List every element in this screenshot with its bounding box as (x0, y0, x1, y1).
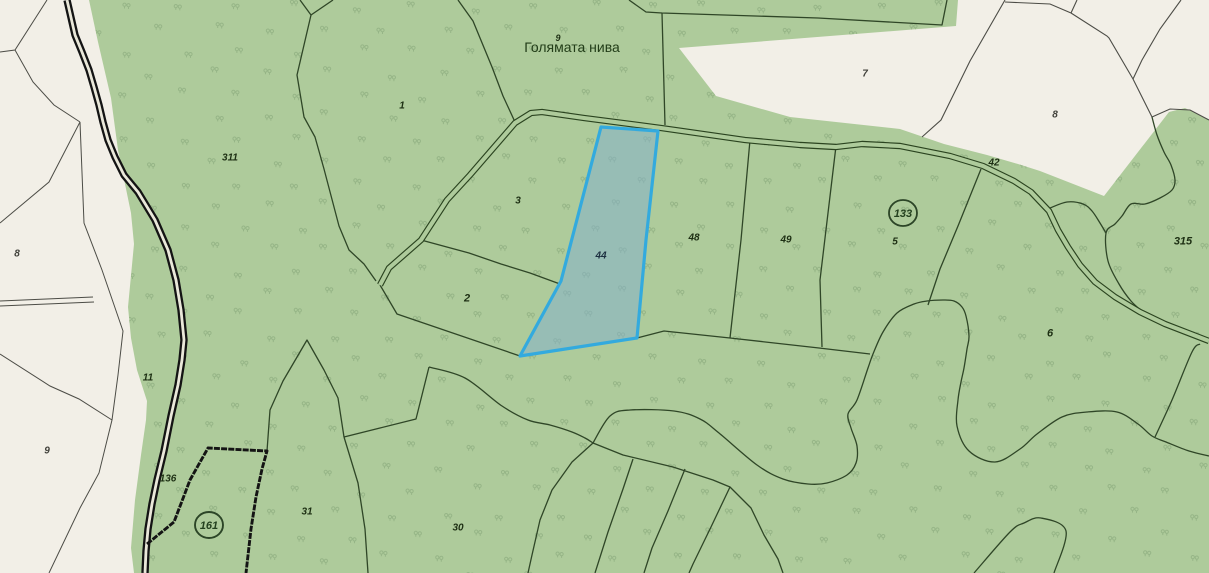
svg-text:8: 8 (1052, 109, 1058, 120)
svg-text:311: 311 (222, 152, 238, 163)
svg-text:315: 315 (1174, 236, 1193, 248)
svg-text:48: 48 (687, 232, 700, 243)
svg-text:31: 31 (301, 506, 313, 517)
svg-text:42: 42 (987, 157, 1000, 168)
svg-text:8: 8 (14, 248, 20, 259)
svg-text:2: 2 (463, 293, 470, 305)
svg-text:1: 1 (399, 100, 405, 111)
svg-text:49: 49 (779, 234, 792, 245)
svg-text:11: 11 (143, 372, 154, 383)
svg-text:133: 133 (894, 208, 912, 220)
svg-text:6: 6 (1047, 328, 1054, 340)
svg-text:3: 3 (515, 195, 521, 206)
svg-text:Голямата нива: Голямата нива (524, 39, 620, 55)
svg-text:136: 136 (160, 473, 177, 484)
svg-text:9: 9 (44, 445, 50, 456)
svg-text:161: 161 (200, 520, 218, 532)
svg-text:44: 44 (594, 250, 607, 261)
svg-text:30: 30 (452, 522, 464, 533)
svg-text:7: 7 (862, 68, 868, 79)
svg-text:5: 5 (892, 236, 898, 247)
